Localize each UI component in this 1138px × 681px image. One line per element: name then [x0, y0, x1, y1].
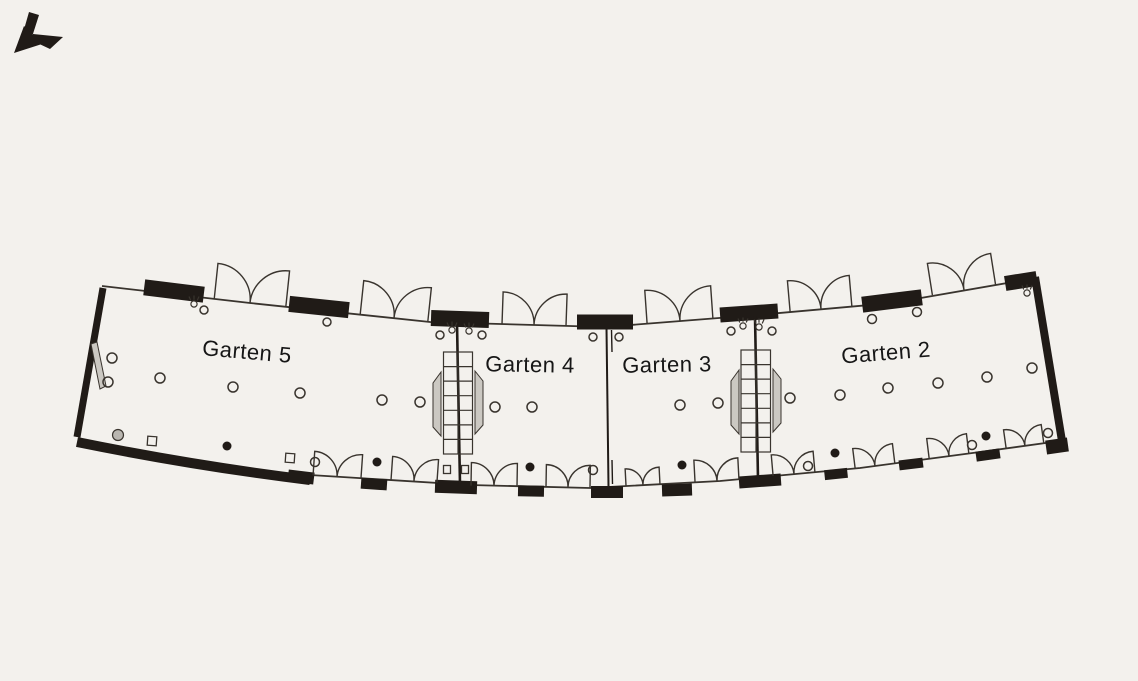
floorplan-canvas: Garten 5 Garten 4 Garten 3 Garten 2: [0, 0, 1138, 681]
floorplan-drawing: [0, 0, 1138, 681]
room-label-garten-4: Garten 4: [485, 351, 575, 379]
partition-wall: [589, 328, 613, 486]
column-markers: [103, 306, 1053, 471]
door-arcs-bottom: [313, 425, 1044, 488]
stair-1: [433, 323, 483, 484]
right-wall: [1035, 277, 1062, 441]
wall-piers-bottom: [287, 438, 1069, 498]
room-label-garten-3: Garten 3: [622, 351, 712, 379]
wall-piers-top: [143, 271, 1038, 329]
